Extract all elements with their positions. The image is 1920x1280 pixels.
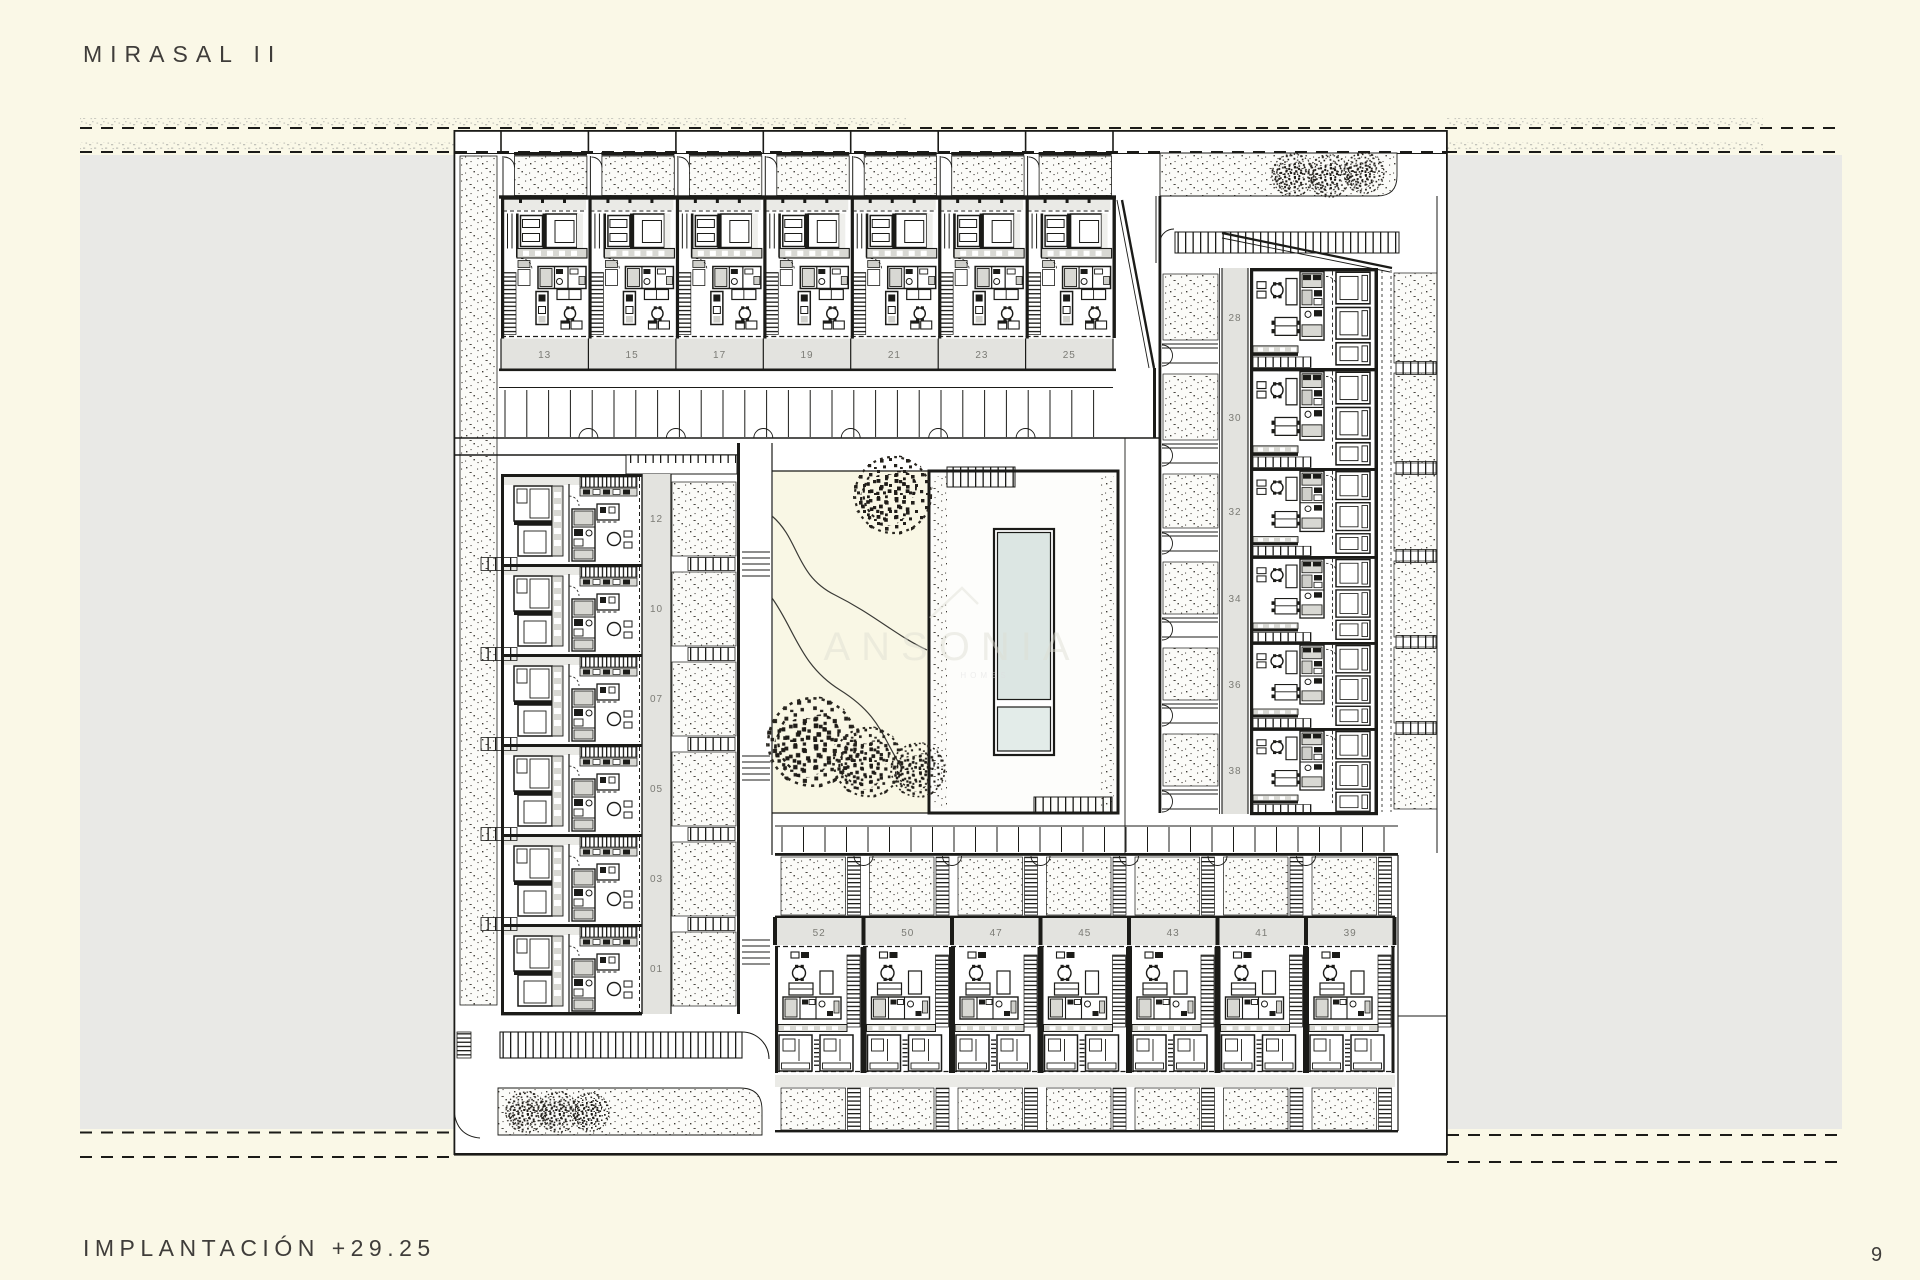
svg-text:25: 25: [1063, 350, 1076, 361]
svg-text:MIRASAL II: MIRASAL II: [83, 41, 282, 67]
svg-text:41: 41: [1255, 928, 1268, 939]
svg-text:28: 28: [1228, 313, 1241, 324]
svg-text:01: 01: [650, 964, 663, 975]
svg-text:05: 05: [650, 784, 663, 795]
svg-text:ANSONIA: ANSONIA: [823, 625, 1080, 669]
svg-text:52: 52: [813, 928, 826, 939]
svg-text:50: 50: [901, 928, 914, 939]
svg-text:21: 21: [888, 350, 901, 361]
svg-text:36: 36: [1228, 680, 1241, 691]
svg-text:38: 38: [1228, 766, 1241, 777]
svg-text:12: 12: [650, 514, 663, 525]
svg-text:19: 19: [800, 350, 813, 361]
svg-text:30: 30: [1228, 413, 1241, 424]
svg-text:43: 43: [1167, 928, 1180, 939]
svg-text:45: 45: [1078, 928, 1091, 939]
svg-text:23: 23: [975, 350, 988, 361]
svg-text:03: 03: [650, 874, 663, 885]
svg-text:IMPLANTACIÓN +29.25: IMPLANTACIÓN +29.25: [83, 1235, 436, 1261]
svg-text:13: 13: [538, 350, 551, 361]
svg-text:39: 39: [1344, 928, 1357, 939]
svg-text:9: 9: [1871, 1244, 1882, 1266]
svg-text:10: 10: [650, 604, 663, 615]
svg-text:17: 17: [713, 350, 726, 361]
svg-text:07: 07: [650, 694, 663, 705]
svg-text:15: 15: [626, 350, 639, 361]
svg-text:32: 32: [1228, 507, 1241, 518]
svg-text:HOMES: HOMES: [960, 671, 1009, 680]
svg-text:47: 47: [990, 928, 1003, 939]
svg-text:34: 34: [1228, 594, 1241, 605]
